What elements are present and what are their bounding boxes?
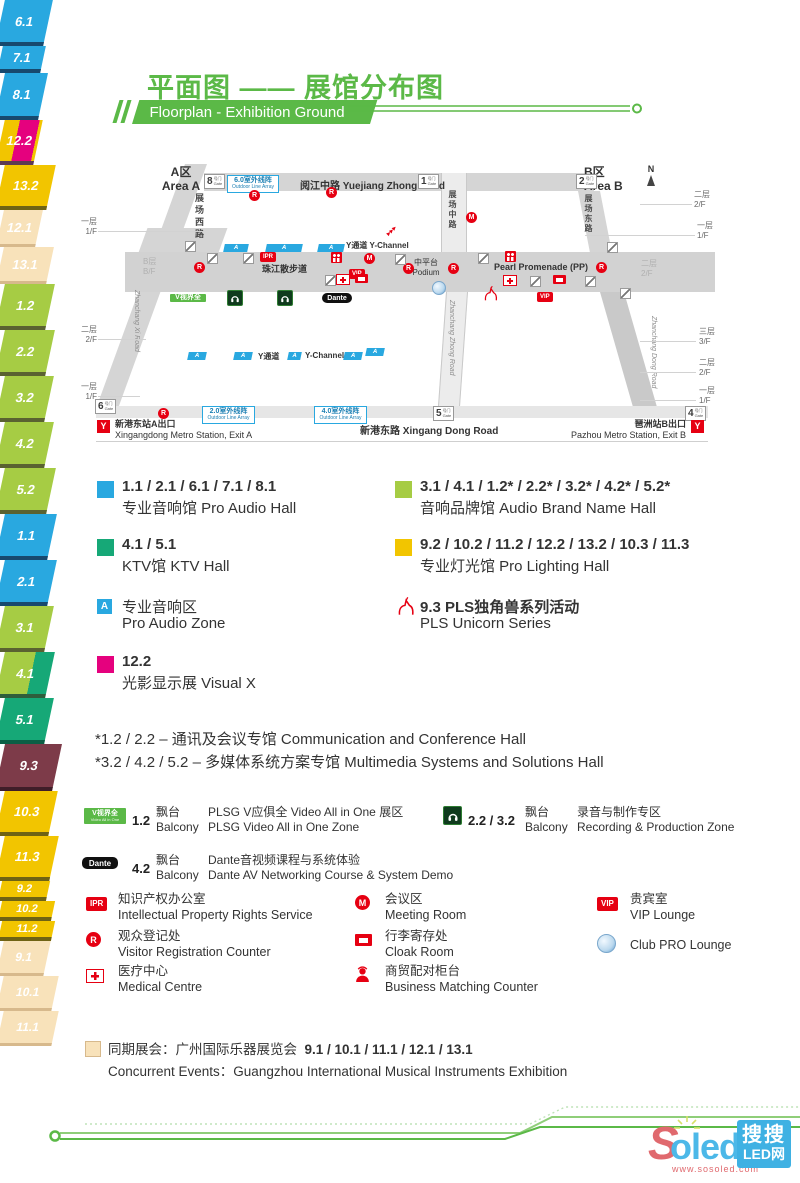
floor-label-1f-right: 一层1/F (699, 386, 717, 406)
pro-audio-zone-strip: A (265, 244, 303, 252)
gate-1: 1号门Gate (418, 174, 439, 189)
restroom-icon (505, 251, 516, 262)
dante-label: Dante (322, 293, 352, 303)
escalator-icon (243, 253, 254, 264)
business-matching-icon (354, 966, 371, 983)
gate-6: 6号门Gate (95, 399, 116, 414)
balcony-loc: 飘台Balcony (156, 853, 199, 883)
balcony-halls: 1.2 (132, 813, 150, 828)
pro-audio-zone-strip: A (365, 348, 385, 356)
legend-swatch-ktv (97, 539, 114, 556)
escalator-icon (207, 253, 218, 264)
balcony-desc: PLSG V应俱全 Video All in One 展区PLSG Video … (208, 805, 403, 835)
leader-line (640, 372, 696, 373)
facility-registration: 观众登记处Visitor Registration Counter (118, 928, 271, 961)
hall-2-1: 2.1 (0, 560, 57, 606)
balcony-loc: 飘台Balcony (525, 805, 568, 835)
ipr-badge: IPR (260, 252, 276, 262)
floor-label-2f-left: 二层2/F (79, 325, 97, 345)
concurrent-swatch (85, 1041, 101, 1057)
hall-11-3: 11.3 (0, 836, 59, 881)
north-label: N (647, 164, 655, 174)
escalator-icon (185, 241, 196, 252)
road-label-zhanchang-dong-en: Zhanchang Dong Road (650, 316, 657, 388)
pro-audio-zone-strip: A (317, 244, 345, 252)
gate-8: 8号门Gate (204, 174, 225, 189)
facility-ipr: 知识产权办公室Intellectual Property Rights Serv… (118, 891, 313, 924)
club-pro-icon (597, 934, 616, 953)
area-a-en: Area A (156, 179, 206, 193)
north-arrow: N (647, 164, 655, 186)
registration-icon: R (158, 408, 169, 419)
hall-13-2: 13.2 (0, 165, 56, 210)
hall-10-2: 10.2 (0, 901, 55, 921)
leader-line (640, 341, 696, 342)
promenade-en-label: Pearl Promenade (PP) (494, 262, 588, 272)
facility-matching: 商贸配对柜台Business Matching Counter (385, 963, 538, 996)
unicorn-icon (481, 285, 499, 303)
club-pro-icon (432, 281, 446, 295)
cloak-room-icon (355, 274, 368, 283)
facility-medical: 医疗中心Medical Centre (118, 963, 202, 996)
pro-audio-zone-strip: A (187, 352, 207, 360)
promenade-zh-label: 珠江散步道 (262, 262, 307, 275)
vip-badge: VIP (597, 897, 618, 911)
balcony-halls: 4.2 (132, 861, 150, 876)
legend-swatch-lighting (395, 539, 412, 556)
cloak-room-icon (355, 934, 372, 946)
hall-1-1: 1.1 (0, 514, 57, 560)
headphones-icon (277, 290, 293, 306)
hall-11-2: 11.2 (0, 921, 55, 941)
floorplan-page: 平面图 —— 展馆分布图 Floorplan - Exhibition Grou… (0, 0, 800, 1183)
floor-label-bf: B层B/F (143, 257, 161, 277)
gate-2: 2号门Gate (576, 174, 597, 189)
cloak-room-icon (553, 275, 566, 284)
escalator-icon (585, 276, 596, 287)
floor-label-2f-road: 二层2/F (641, 259, 659, 279)
area-a-label: A区 Area A (156, 165, 206, 194)
escalator-icon (478, 253, 489, 264)
footnote-1: *1.2 / 2.2 – 通讯及会议专馆 Communication and C… (95, 728, 526, 749)
floor-label-2f-right-top: 二层2/F (694, 190, 712, 210)
soled-watermark: S oled www.sosoled.com 搜搜 LED网 (648, 1112, 793, 1178)
north-triangle-icon (647, 175, 655, 186)
hall-6-1: 6.1 (0, 0, 53, 46)
legend-name: KTV馆 KTV Hall (122, 555, 230, 576)
ychannel-bottom-en: Y-Channel (305, 351, 344, 360)
outdoor-line-array-4: 4.0室外线阵Outdoor Line Array (314, 406, 367, 424)
vip-badge: VIP (537, 292, 553, 302)
footnote-2: *3.2 / 4.2 / 5.2 – 多媒体系统方案专馆 Multimedia … (95, 751, 604, 772)
legend-title: 专业音响区 (122, 596, 197, 617)
metro-b-label: 琶洲站B出口 Pazhou Metro Station, Exit B (470, 419, 686, 441)
hall-10-3: 10.3 (0, 791, 58, 836)
hall-2-2: 2.2 (0, 330, 55, 376)
road-xingang (96, 406, 708, 418)
medical-icon (336, 274, 350, 285)
pro-audio-zone-strip: A (223, 244, 249, 252)
pro-audio-zone-strip: A (233, 352, 253, 360)
floor-label-1f-left: 一层1/F (79, 217, 97, 237)
escalator-icon (325, 275, 336, 286)
road-label-zhanchang-zhong-zh: 展场中路 (447, 190, 458, 230)
facility-club-pro: Club PRO Lounge (630, 937, 731, 953)
escalator-icon (607, 242, 618, 253)
meeting-room-icon: M (355, 895, 370, 910)
headphones-icon (227, 290, 243, 306)
registration-icon: R (596, 262, 607, 273)
hall-13-1: 13.1 (0, 247, 54, 284)
facility-vip: 贵宾室VIP Lounge (630, 891, 695, 924)
hall-12-2: 12.2 (0, 120, 43, 165)
legend-name: 专业音响馆 Pro Audio Hall (122, 497, 296, 518)
logo-oled: oled (670, 1126, 740, 1168)
road-label-zhanchang-zhong-en: Zhanchang Zhong Road (448, 300, 455, 376)
legend-name: 光影显示展 Visual X (122, 672, 256, 693)
concurrent-line-en: Concurrent Events：Guangzhou Internationa… (108, 1060, 567, 1080)
facility-cloak: 行李寄存处Cloak Room (385, 928, 454, 961)
medical-icon (503, 275, 517, 286)
leader-line (585, 235, 695, 236)
hall-4-1: 4.1 (0, 652, 55, 698)
hall-3-2: 3.2 (0, 376, 54, 422)
road-label-zhanchang-xi-en: Zhanchang Xi Road (133, 290, 140, 352)
balcony-desc: 录音与制作专区Recording & Production Zone (577, 805, 734, 835)
legend-name: 专业灯光馆 Pro Lighting Hall (420, 555, 609, 576)
direction-arrows-icon: ▶▶▶ (386, 225, 398, 237)
hall-4-2: 4.2 (0, 422, 54, 468)
dante-label: Dante (82, 857, 118, 869)
legend-title: 9.3 PLS独角兽系列活动 (420, 596, 579, 617)
hall-5-1: 5.1 (0, 698, 54, 744)
hall-1-2: 1.2 (0, 284, 55, 330)
legend-title: 4.1 / 5.1 (122, 536, 176, 553)
registration-icon: R (249, 190, 260, 201)
legend-swatch-visual-x (97, 656, 114, 673)
hall-12-1: 12.1 (0, 210, 43, 247)
legend-name: PLS Unicorn Series (420, 615, 551, 632)
hall-9-1: 9.1 (0, 941, 51, 976)
gate-5: 5号门Gate (433, 406, 454, 421)
floor-label-3f-right: 三层3/F (699, 327, 717, 347)
hall-9-2: 9.2 (0, 881, 50, 901)
leader-line (98, 396, 140, 397)
ipr-badge: IPR (86, 897, 107, 911)
road-label-zhanchang-xi-zh: 展场西路 (193, 193, 206, 241)
concurrent-halls: 9.1 / 10.1 / 11.1 / 12.1 / 13.1 (305, 1042, 473, 1057)
meeting-room-icon: M (364, 253, 375, 264)
road-label-zhanchang-dong-zh: 展场东路 (583, 194, 594, 234)
floor-label-2f-right: 二层2/F (699, 358, 717, 378)
legend-title: 9.2 / 10.2 / 11.2 / 12.2 / 13.2 / 10.3 /… (420, 536, 689, 553)
page-subtitle: Floorplan - Exhibition Ground (136, 104, 345, 121)
legend-title: 3.1 / 4.1 / 1.2* / 2.2* / 3.2* / 4.2* / … (420, 478, 670, 495)
metro-a-label: 新港东站A出口 Xingangdong Metro Station, Exit … (115, 419, 252, 441)
legend-swatch-pro-audio (97, 481, 114, 498)
hall-5-2: 5.2 (0, 468, 56, 514)
facility-meeting: 会议区Meeting Room (385, 891, 466, 924)
legend-name: Pro Audio Zone (122, 615, 225, 632)
escalator-icon (530, 276, 541, 287)
meeting-room-icon: M (466, 212, 477, 223)
balcony-desc: Dante音视频课程与系统体验Dante AV Networking Cours… (208, 853, 453, 883)
escalator-icon (620, 288, 631, 299)
road-zhanchang-dong-lower (600, 292, 657, 408)
concurrent-line-zh: 同期展会：广州国际乐器展览会 9.1 / 10.1 / 11.1 / 12.1 … (108, 1038, 473, 1058)
registration-icon: R (448, 263, 459, 274)
hall-3-1: 3.1 (0, 606, 54, 652)
registration-icon: R (326, 187, 337, 198)
metro-icon: Y (97, 420, 110, 433)
legend-title: 1.1 / 2.1 / 6.1 / 7.1 / 8.1 (122, 478, 276, 495)
leader-line (98, 231, 204, 232)
legend-name: 音响品牌馆 Audio Brand Name Hall (420, 497, 656, 518)
ychannel-bottom-zh: Y通道 (258, 351, 279, 362)
gate-4: 4号门Gate (685, 406, 706, 421)
escalator-icon (395, 254, 406, 265)
ychannel-top-label: Y通道 Y-Channel (346, 240, 409, 251)
hall-8-1: 8.1 (0, 73, 48, 120)
balcony-loc: 飘台Balcony (156, 805, 199, 835)
leader-line (640, 400, 696, 401)
hall-7-1: 7.1 (0, 46, 46, 73)
pro-audio-zone-badge: A (97, 599, 112, 614)
v-video-all-in-one-label: V视界全 (170, 294, 206, 302)
registration-icon: R (194, 262, 205, 273)
legend-title: 12.2 (122, 653, 151, 670)
logo-box: 搜搜 LED网 (737, 1120, 791, 1168)
header-rule (340, 98, 660, 120)
area-a-zh: A区 (156, 165, 206, 179)
pro-audio-zone-strip: A (287, 352, 302, 360)
medical-icon (86, 969, 104, 983)
metro-icon: Y (691, 420, 704, 433)
hall-11-1: 11.1 (0, 1011, 59, 1046)
leader-line (640, 204, 692, 205)
hall-10-1: 10.1 (0, 976, 59, 1011)
floor-label-1f-right-top: 一层1/F (697, 221, 715, 241)
balcony-halls: 2.2 / 3.2 (468, 813, 515, 828)
registration-icon: R (86, 932, 101, 947)
v-video-all-in-one-label: V视界全Video All in One (84, 808, 126, 824)
pro-audio-zone-strip: A (343, 352, 363, 360)
hall-9-3: 9.3 (0, 744, 62, 791)
legend-swatch-brand-name (395, 481, 412, 498)
restroom-icon (331, 252, 342, 263)
headphones-icon (443, 806, 462, 825)
floor-label-1f-left-low: 一层1/F (79, 382, 97, 402)
unicorn-icon (394, 596, 416, 618)
leader-line (98, 339, 146, 340)
